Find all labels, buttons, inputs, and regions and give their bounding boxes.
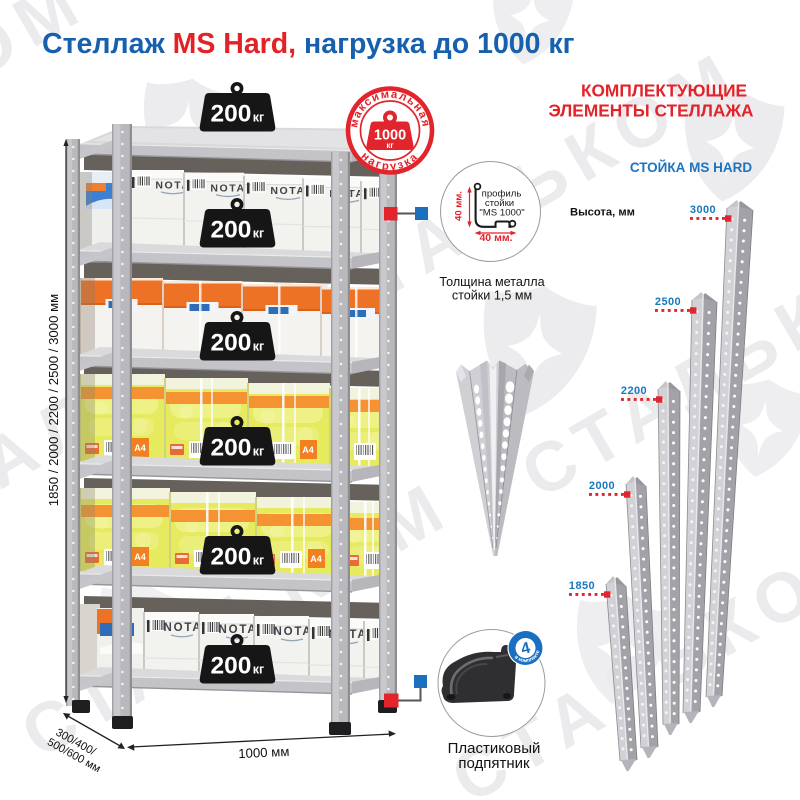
svg-text:2000: 2000	[589, 480, 615, 492]
svg-text:кг: кг	[253, 340, 264, 354]
svg-text:A4: A4	[134, 552, 146, 562]
svg-text:NOTA: NOTA	[164, 622, 203, 634]
svg-text:1850: 1850	[569, 580, 595, 592]
svg-text:200: 200	[211, 653, 252, 680]
svg-text:40 мм.: 40 мм.	[454, 191, 465, 221]
svg-text:кг: кг	[253, 663, 264, 677]
svg-text:2500: 2500	[655, 296, 681, 308]
svg-text:1850 / 2000 / 2200 / 2500 / 30: 1850 / 2000 / 2200 / 2500 / 3000 мм	[46, 294, 61, 506]
svg-text:200: 200	[211, 435, 252, 462]
svg-text:СТОЙКА MS HARD: СТОЙКА MS HARD	[630, 160, 753, 175]
svg-text:200: 200	[211, 101, 252, 128]
svg-text:стойки 1,5 мм: стойки 1,5 мм	[452, 289, 532, 303]
svg-text:3000: 3000	[690, 204, 716, 216]
svg-text:кг: кг	[253, 445, 264, 459]
svg-text:кг: кг	[253, 227, 264, 241]
svg-text:2200: 2200	[621, 385, 647, 397]
svg-text:200: 200	[211, 217, 252, 244]
svg-text:"MS 1000": "MS 1000"	[479, 208, 524, 219]
svg-text:A4: A4	[302, 445, 314, 455]
svg-text:NOTA: NOTA	[210, 182, 245, 194]
svg-text:Высота, мм: Высота, мм	[570, 207, 635, 219]
svg-text:кг: кг	[253, 111, 264, 125]
svg-text:кг: кг	[253, 554, 264, 568]
svg-text:ЭЛЕМЕНТЫ СТЕЛЛАЖА: ЭЛЕМЕНТЫ СТЕЛЛАЖА	[549, 101, 754, 121]
svg-text:NOTA: NOTA	[274, 626, 313, 638]
svg-text:подпятник: подпятник	[458, 755, 530, 772]
svg-text:Стеллаж MS Hard, нагрузка до 1: Стеллаж MS Hard, нагрузка до 1000 кг	[42, 28, 575, 60]
svg-text:Толщина металла: Толщина металла	[439, 275, 544, 289]
svg-text:кг: кг	[386, 141, 394, 150]
svg-text:A4: A4	[134, 443, 146, 453]
svg-text:200: 200	[211, 544, 252, 571]
svg-text:A4: A4	[310, 554, 322, 564]
svg-text:1000 мм: 1000 мм	[238, 744, 290, 761]
svg-text:200: 200	[211, 330, 252, 357]
svg-text:NOTA: NOTA	[270, 185, 305, 197]
svg-text:КОМПЛЕКТУЮЩИЕ: КОМПЛЕКТУЮЩИЕ	[581, 81, 747, 101]
svg-text:40 мм.: 40 мм.	[479, 232, 512, 244]
